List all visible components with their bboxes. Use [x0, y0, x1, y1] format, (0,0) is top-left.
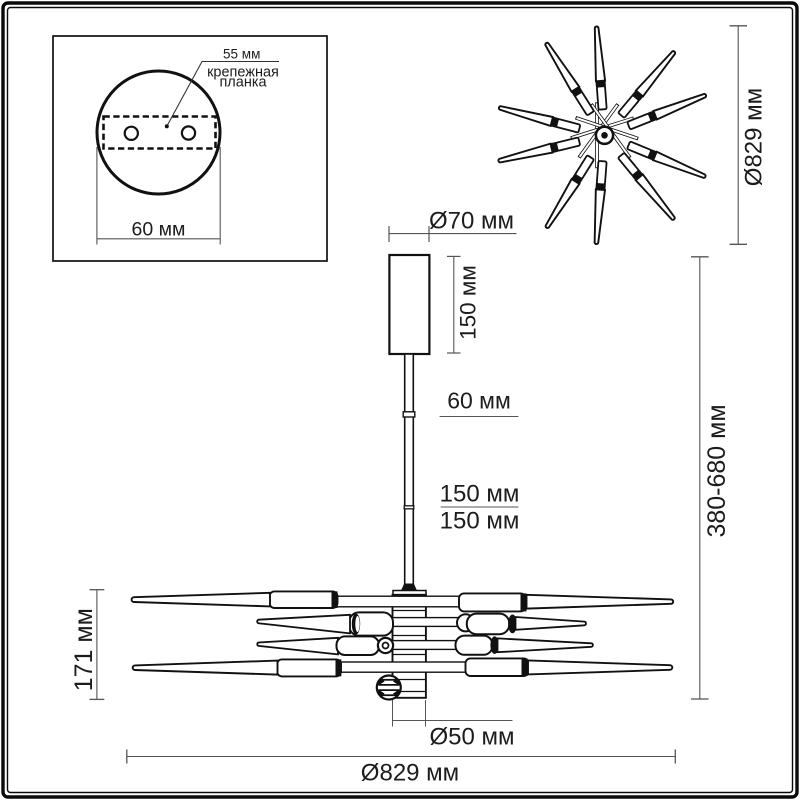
svg-text:Ø829 мм: Ø829 мм [741, 88, 768, 186]
svg-text:171 мм: 171 мм [70, 608, 98, 691]
svg-text:60 мм: 60 мм [447, 388, 511, 414]
svg-text:планка: планка [219, 74, 267, 90]
svg-text:Ø829 мм: Ø829 мм [361, 759, 459, 786]
svg-text:Ø50 мм: Ø50 мм [429, 724, 514, 751]
svg-text:150 мм: 150 мм [440, 508, 520, 535]
svg-text:150 мм: 150 мм [440, 481, 520, 508]
svg-text:Ø70 мм: Ø70 мм [429, 207, 514, 234]
svg-text:150 мм: 150 мм [456, 265, 481, 340]
svg-text:380-680 мм: 380-680 мм [703, 404, 731, 537]
svg-text:55 мм: 55 мм [223, 46, 260, 61]
svg-text:60 мм: 60 мм [132, 219, 186, 241]
